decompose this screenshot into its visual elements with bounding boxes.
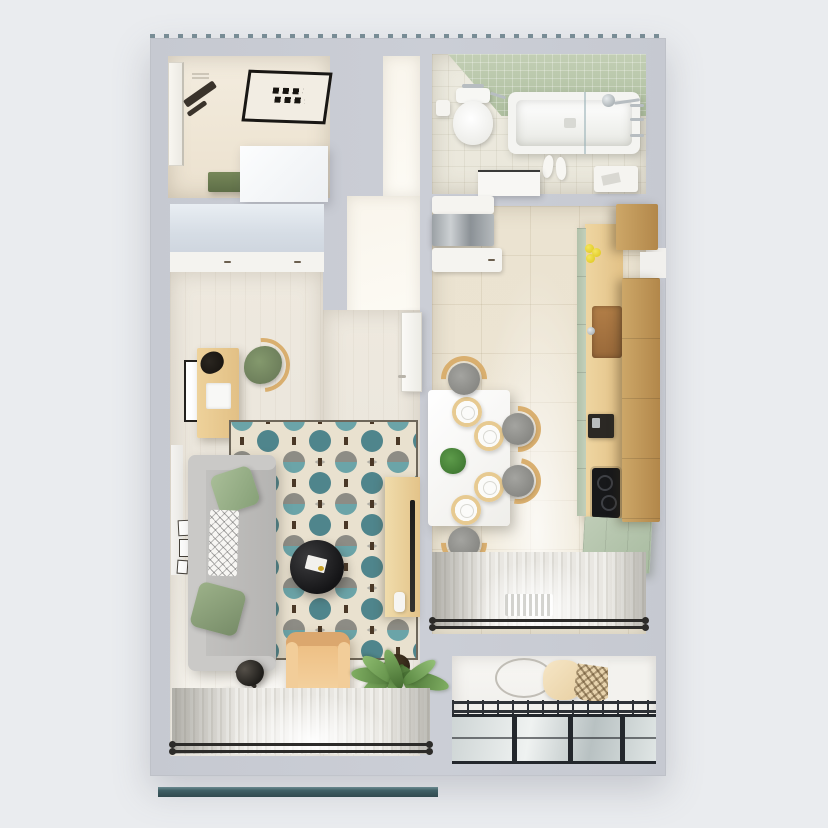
gallery-frame (177, 560, 189, 575)
tv-panel (385, 477, 420, 617)
apartment-floor-plan (0, 0, 828, 828)
side-cabinet (594, 166, 638, 192)
lower-cabinet (432, 248, 502, 272)
bathroom (432, 54, 646, 194)
kitchen-curtain-rod (428, 618, 650, 632)
shower-head (602, 94, 615, 107)
ventilation-grille (192, 73, 209, 80)
sink (592, 306, 622, 358)
vanity (478, 170, 540, 196)
cooktop (592, 468, 620, 518)
coat-rack (180, 80, 224, 124)
railing-transom (452, 700, 656, 714)
dining-chair (495, 458, 541, 504)
refrigerator (432, 214, 494, 246)
bathtub-drain (564, 118, 576, 128)
dining-chair (441, 356, 487, 402)
dining-chair (495, 406, 541, 452)
glass-screen (584, 92, 586, 154)
living-curtain-rod (168, 742, 434, 756)
cabinet-fronts (577, 228, 586, 516)
tv (410, 500, 415, 612)
balcony (452, 656, 656, 760)
table-plant (440, 448, 466, 474)
speaker (394, 592, 405, 612)
open-door (401, 312, 422, 392)
wardrobe-handle (294, 261, 301, 263)
door-handle (398, 375, 406, 378)
slipper (555, 157, 567, 181)
toilet-paper-holder (436, 100, 450, 116)
bag (197, 348, 227, 376)
wardrobe (170, 204, 324, 272)
refrigerator-top (432, 196, 494, 214)
green-pillow (209, 464, 261, 515)
upper-cabinet (622, 278, 660, 522)
slipper (541, 154, 554, 178)
radiator (505, 594, 553, 616)
glazed-railing (452, 714, 656, 764)
kitchen-curtains (432, 552, 646, 628)
towel-bar (462, 84, 484, 88)
laptop (206, 383, 231, 409)
wardrobe-handle (224, 261, 231, 263)
toilet (453, 101, 493, 145)
corner-sofa (188, 455, 276, 671)
faucet (587, 327, 595, 335)
gold-decor (318, 566, 324, 571)
upper-cabinet (616, 204, 658, 250)
book (305, 555, 328, 573)
desk-chair (236, 338, 290, 392)
bottom-facade-window (158, 787, 438, 797)
patterned-throw (208, 510, 239, 577)
coffee-table (290, 540, 344, 594)
doormat (241, 70, 332, 125)
kitchen (432, 206, 646, 634)
corridor-upper (383, 56, 420, 196)
coffee-machine (588, 414, 614, 438)
wall-niche (640, 252, 664, 278)
storage-box (240, 146, 328, 202)
living-room (170, 272, 432, 756)
